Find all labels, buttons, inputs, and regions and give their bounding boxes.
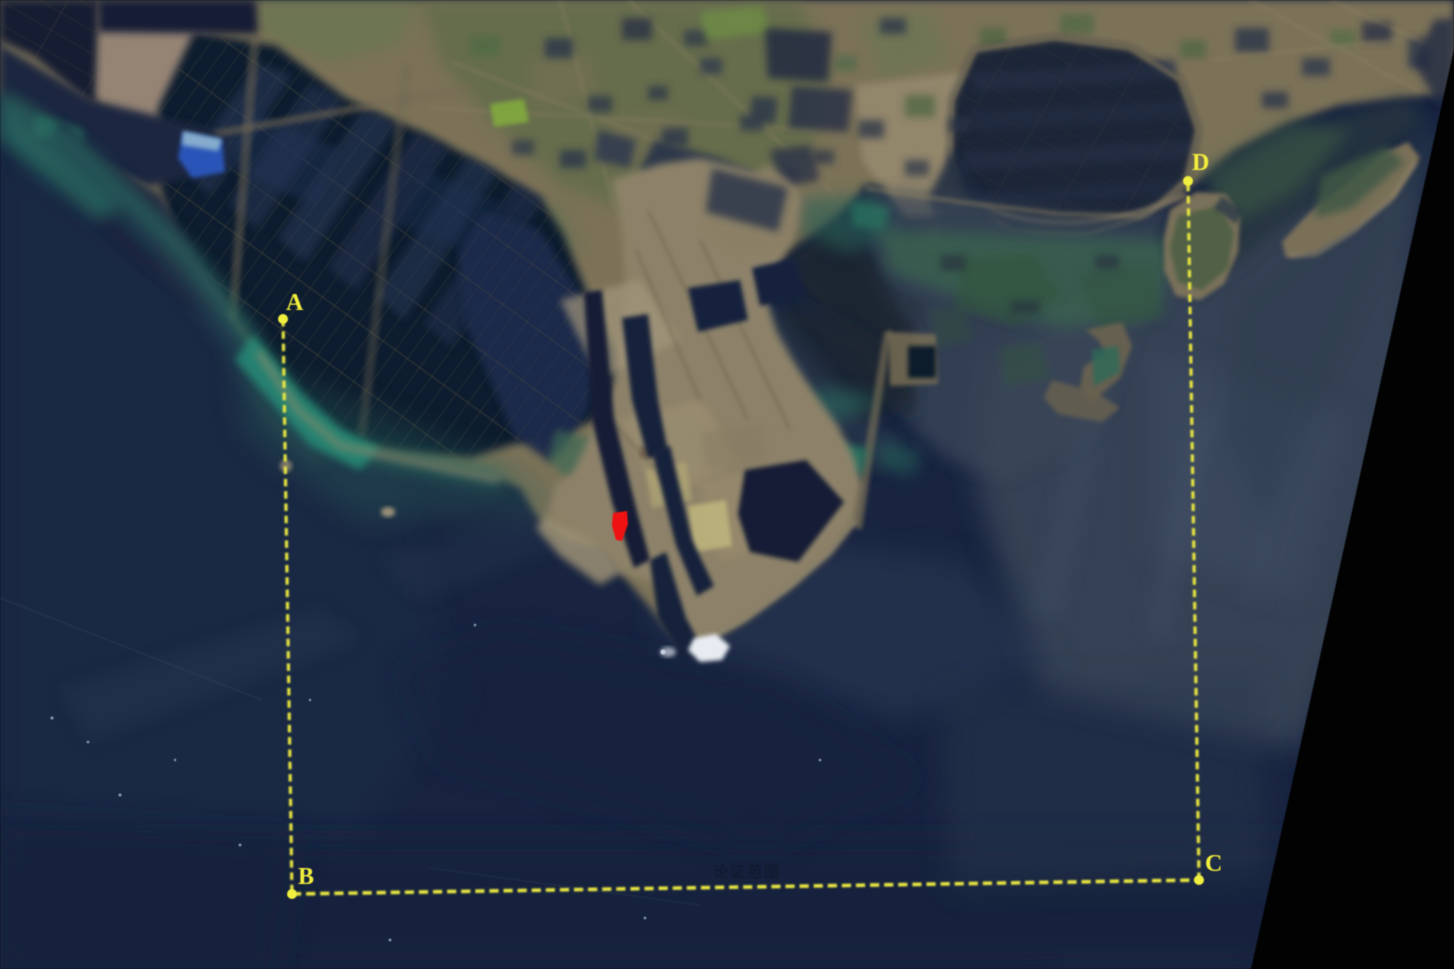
svg-text:论证范围: 论证范围	[713, 863, 781, 881]
svg-text:A: A	[286, 290, 304, 316]
svg-text:C: C	[1205, 851, 1222, 877]
svg-text:D: D	[1192, 150, 1209, 176]
svg-text:B: B	[298, 864, 314, 890]
